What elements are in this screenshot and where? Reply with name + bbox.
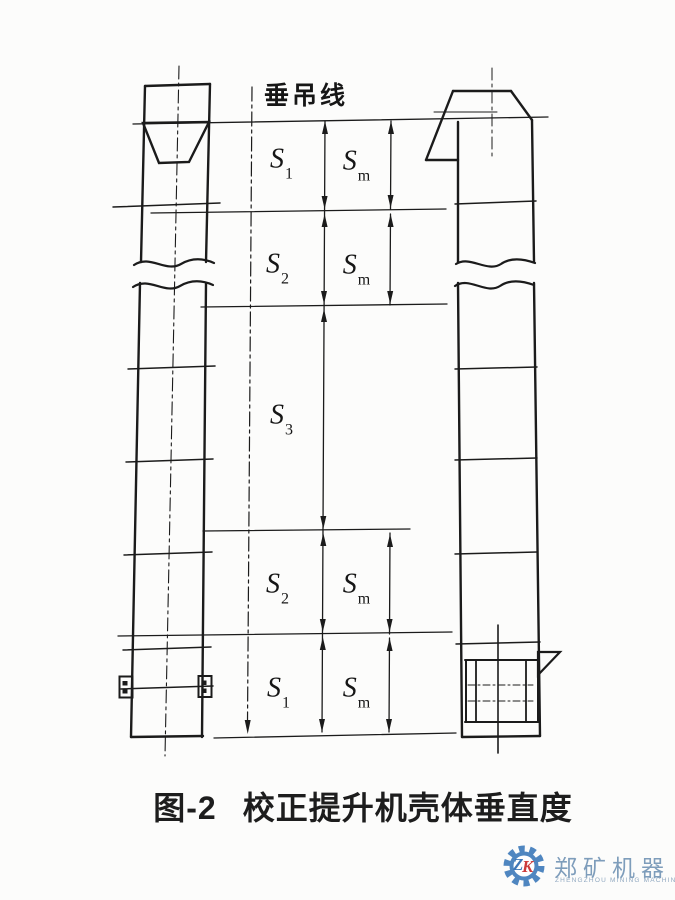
figure-caption: 图-2校正提升机壳体垂直度 — [153, 783, 572, 829]
left-casing-right-edge-lower — [202, 283, 206, 737]
ref-line-5 — [118, 632, 452, 636]
figure-title: 校正提升机壳体垂直度 — [243, 790, 573, 826]
right-casing-left-edge-lower — [458, 283, 462, 737]
right-boot-flag — [538, 652, 560, 675]
dim-label-s1-bottom: S1 — [267, 675, 289, 708]
figure-number: 图-2 — [153, 790, 216, 826]
left-casing-bottom-edge — [131, 736, 203, 737]
dim-label-s1-top: S1 — [270, 146, 292, 179]
dim-label-s2-bottom: S2 — [266, 571, 288, 604]
ref-line-bottom — [214, 733, 456, 738]
left-casing-left-edge-upper — [141, 86, 145, 262]
left-casing — [113, 66, 220, 756]
logo-monogram: Z K — [500, 842, 548, 890]
dim-label-s2-top: S2 — [266, 251, 288, 284]
right-casing-flanges — [455, 201, 540, 644]
figure-page: 垂吊线 S1 Sm S2 Sm S3 S2 Sm S1 Sm 图-2校正提升机壳… — [0, 0, 675, 900]
dim-label-sm-top: Sm — [343, 148, 369, 181]
dim-label-sm-lower: Sm — [343, 571, 369, 604]
plumb-line — [245, 87, 252, 734]
right-head — [426, 91, 532, 160]
plumb-line-arrow — [245, 720, 251, 734]
right-casing-bottom-edge — [462, 736, 540, 737]
company-logo: Z K 郑矿机器 ZHENGZHOU MINING MACHINERY — [500, 842, 665, 892]
dim-label-s3: S3 — [270, 402, 292, 435]
dim-label-sm-upper: Sm — [343, 252, 369, 285]
ref-line-4 — [203, 529, 410, 531]
reference-lines — [118, 117, 548, 738]
left-head-hopper — [143, 122, 209, 163]
right-casing — [426, 68, 560, 753]
right-casing-break — [455, 259, 535, 288]
right-casing-right-edge-upper — [532, 120, 534, 262]
elevator-diagram — [0, 0, 675, 900]
left-casing-centerline — [165, 66, 179, 756]
left-boot-lugs — [120, 676, 212, 698]
plumb-line-label: 垂吊线 — [264, 76, 348, 112]
logo-letter-k: K — [522, 857, 533, 877]
dimension-arrowheads — [319, 121, 394, 732]
dim-label-sm-bottom: Sm — [343, 675, 369, 708]
left-casing-break — [133, 259, 214, 288]
left-casing-left-edge-lower — [131, 283, 140, 737]
ref-line-2 — [151, 209, 446, 213]
gear-icon: Z K — [500, 842, 548, 890]
left-casing-right-edge-upper — [206, 84, 210, 262]
left-casing-top-edge — [145, 84, 210, 86]
company-name-en: ZHENGZHOU MINING MACHINERY — [555, 877, 675, 884]
